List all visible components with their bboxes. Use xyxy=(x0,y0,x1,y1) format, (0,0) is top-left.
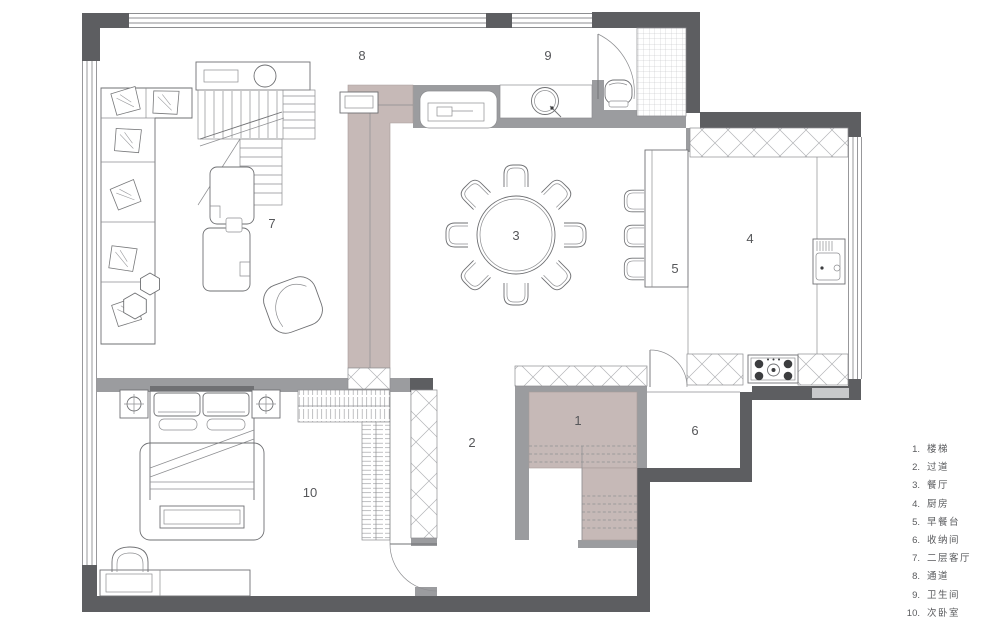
kitchen xyxy=(624,128,848,385)
wall-shelf-icon xyxy=(340,92,378,113)
shower-tile-area xyxy=(637,28,686,116)
window-top xyxy=(129,14,592,28)
breakfast-bar xyxy=(645,150,688,287)
base-cabinets-right xyxy=(798,354,848,385)
room-label-8: 8 xyxy=(358,48,365,63)
window-right xyxy=(849,137,862,379)
bedroom xyxy=(100,386,437,596)
legend-item: 9.卫生间 xyxy=(903,587,999,605)
room-label-9: 9 xyxy=(544,48,551,63)
legend-item: 8.通道 xyxy=(903,568,999,586)
window-left xyxy=(83,61,97,565)
legend: 1.楼梯 2.过道 3.餐厅 4.厨房 5.早餐台 6.收纳间 7.二层客厅 8… xyxy=(903,441,999,623)
legend-item: 1.楼梯 xyxy=(903,441,999,459)
desk-icon xyxy=(100,547,250,596)
toilet-icon xyxy=(605,80,632,107)
bathroom xyxy=(420,28,686,128)
corridor-cabinet xyxy=(411,390,437,538)
lounge-chair-icon xyxy=(259,272,327,337)
room-label-7: 7 xyxy=(268,216,275,231)
hexagon-side-tables xyxy=(124,273,160,319)
room-label-4: 4 xyxy=(746,231,753,246)
room-label-2: 2 xyxy=(468,435,475,450)
vanity-basin-icon xyxy=(500,85,592,118)
nightstand-left xyxy=(120,390,148,418)
sink-icon xyxy=(813,239,845,284)
upper-cabinets xyxy=(690,128,848,157)
niche-cabinet-icon xyxy=(428,103,484,121)
coffee-table-icon xyxy=(203,167,254,291)
legend-item: 10.次卧室 xyxy=(903,605,999,623)
headboard xyxy=(150,386,254,391)
legend-item: 7.二层客厅 xyxy=(903,550,999,568)
legend-item: 4.厨房 xyxy=(903,496,999,514)
room-label-3: 3 xyxy=(512,228,519,243)
bar-stools xyxy=(624,190,644,280)
bedroom-door xyxy=(390,544,437,591)
console-table-icon xyxy=(196,62,310,90)
base-cabinets-left xyxy=(687,354,743,385)
legend-item: 5.早餐台 xyxy=(903,514,999,532)
legend-item: 2.过道 xyxy=(903,459,999,477)
pink-wall-band xyxy=(348,85,413,389)
bed-icon xyxy=(140,391,264,540)
stove-icon xyxy=(748,355,798,383)
floor-plan-page: 1 2 3 4 5 6 7 8 9 10 1.楼梯 2.过道 3.餐厅 4.厨房… xyxy=(0,0,1000,624)
storage-door xyxy=(650,350,687,387)
legend-item: 3.餐厅 xyxy=(903,477,999,495)
room-label-6: 6 xyxy=(691,423,698,438)
room-label-1: 1 xyxy=(574,413,581,428)
living-room xyxy=(101,62,378,344)
nightstand-right xyxy=(252,390,280,418)
legend-item: 6.收纳间 xyxy=(903,532,999,550)
room-label-5: 5 xyxy=(671,261,678,276)
room-label-10: 10 xyxy=(303,485,317,500)
wardrobe xyxy=(298,390,411,544)
floor-plan: 1 2 3 4 5 6 7 8 9 10 xyxy=(0,0,1000,624)
staircase xyxy=(515,366,647,540)
